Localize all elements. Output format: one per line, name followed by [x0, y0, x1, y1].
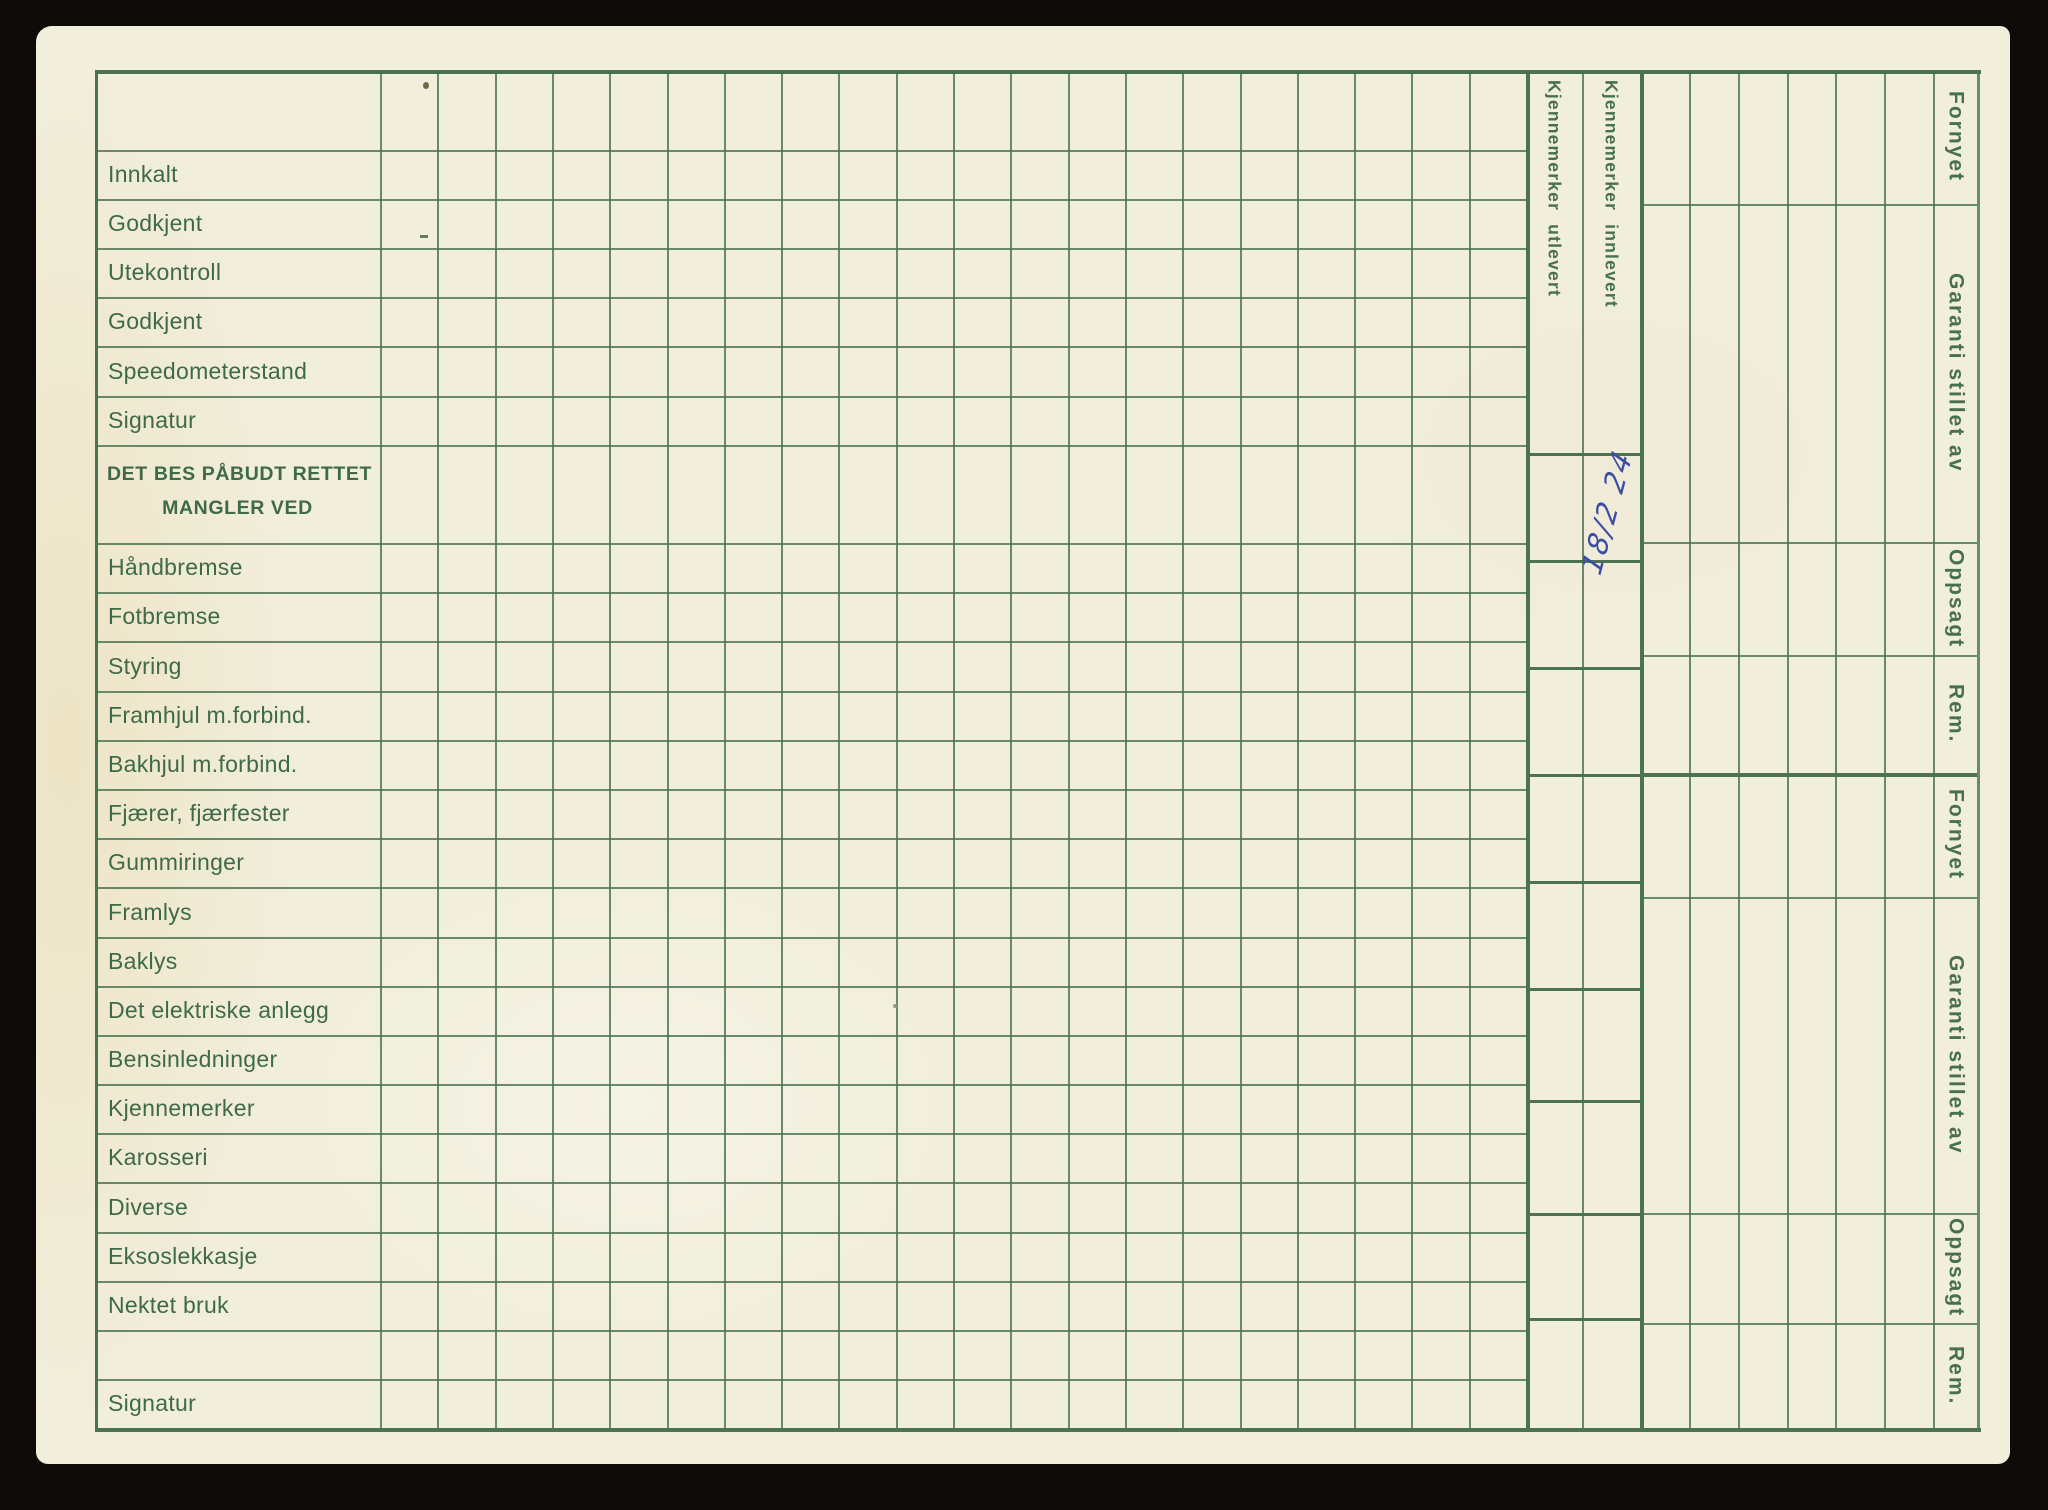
row-label: Gummiringer: [95, 838, 380, 887]
grid-line: [1977, 70, 1980, 1428]
right-label: Garanti stillet av: [1934, 204, 1977, 542]
row-label: Nektet bruk: [95, 1281, 380, 1330]
row-label: Godkjent: [95, 199, 380, 248]
grid-line: [1526, 667, 1640, 670]
row-label: Speedometerstand: [95, 346, 380, 396]
grid-line: [1787, 70, 1789, 1428]
plates-issued-label: Kjennemerker utlevert: [1544, 80, 1565, 453]
defects-header-line1: DET BES PÅBUDT RETTET: [95, 457, 380, 491]
grid-line: [1526, 1100, 1640, 1103]
right-label: Fornyet: [1934, 773, 1977, 897]
right-label: Oppsagt: [1934, 1213, 1977, 1323]
defects-header-line2: MANGLER VED: [95, 491, 380, 525]
row-label: Framlys: [95, 887, 380, 937]
grid-line: [1354, 70, 1356, 1428]
row-label: Diverse: [95, 1182, 380, 1232]
grid-line: [1010, 70, 1012, 1428]
scan-speck: [423, 82, 429, 89]
grid-line: [95, 70, 1981, 74]
row-label: Eksoslekkasje: [95, 1232, 380, 1281]
defects-header: DET BES PÅBUDT RETTET MANGLER VED: [95, 445, 380, 543]
grid-line: [1640, 70, 1644, 1428]
grid-line: [1526, 1318, 1640, 1321]
grid-line: [1640, 897, 1977, 899]
grid-line: [1640, 542, 1977, 544]
grid-line: [1526, 1213, 1640, 1216]
column-header-plates-returned: Kjennemerker innlevert: [1582, 70, 1640, 453]
grid-line: [1640, 204, 1977, 206]
right-label-text: Rem.: [1944, 1346, 1968, 1405]
grid-line: [838, 70, 840, 1428]
grid-line: [1125, 70, 1127, 1428]
right-label-text: Oppsagt: [1944, 549, 1968, 648]
scan-speck: [420, 235, 428, 238]
scanned-inspection-card: InnkaltGodkjentUtekontrollGodkjentSpeedo…: [0, 0, 2048, 1510]
column-header-plates-issued: Kjennemerker utlevert: [1526, 70, 1582, 453]
row-label: Signatur: [95, 1379, 380, 1428]
scan-speck: [893, 1004, 897, 1008]
row-label: Fotbremse: [95, 592, 380, 641]
row-label: Signatur: [95, 396, 380, 445]
right-label: Garanti stillet av: [1934, 897, 1977, 1213]
row-label: Fjærer, fjærfester: [95, 789, 380, 838]
row-label: Utekontroll: [95, 248, 380, 297]
row-label: Kjennemerker: [95, 1084, 380, 1133]
grid-line: [781, 70, 783, 1428]
grid-line: [1182, 70, 1184, 1428]
row-label: Godkjent: [95, 297, 380, 346]
right-label: Rem.: [1934, 1323, 1977, 1428]
right-label-text: Fornyet: [1944, 91, 1968, 182]
grid-line: [437, 70, 439, 1428]
grid-line: [1640, 1213, 1977, 1215]
grid-line: [1884, 70, 1886, 1428]
row-label: Bensinledninger: [95, 1035, 380, 1084]
grid-line: [1411, 70, 1413, 1428]
right-label: Fornyet: [1934, 70, 1977, 204]
grid-line: [1640, 773, 1977, 777]
row-label: Håndbremse: [95, 543, 380, 592]
grid-line: [95, 1330, 1526, 1332]
grid-line: [1240, 70, 1242, 1428]
grid-line: [1738, 70, 1740, 1428]
row-label: Baklys: [95, 937, 380, 986]
row-label: Bakhjul m.forbind.: [95, 740, 380, 789]
grid-line: [495, 70, 497, 1428]
grid-line: [1689, 70, 1691, 1428]
row-label: Innkalt: [95, 150, 380, 199]
grid-line: [1526, 774, 1640, 777]
right-label: Rem.: [1934, 655, 1977, 773]
right-label-text: Rem.: [1944, 684, 1968, 743]
right-label-text: Garanti stillet av: [1944, 273, 1968, 472]
grid-line: [953, 70, 955, 1428]
right-label-text: Fornyet: [1944, 789, 1968, 880]
right-label-text: Oppsagt: [1944, 1218, 1968, 1317]
grid-line: [1526, 881, 1640, 884]
grid-line: [609, 70, 611, 1428]
row-label: Karosseri: [95, 1133, 380, 1182]
row-label: Styring: [95, 641, 380, 691]
grid-line: [1526, 988, 1640, 991]
grid-line: [1835, 70, 1837, 1428]
grid-line: [1469, 70, 1471, 1428]
grid-line: [1068, 70, 1070, 1428]
right-label-text: Garanti stillet av: [1944, 955, 1968, 1154]
grid-line: [95, 1428, 1981, 1432]
row-label: Det elektriske anlegg: [95, 986, 380, 1035]
grid-line: [552, 70, 554, 1428]
row-label: Framhjul m.forbind.: [95, 691, 380, 740]
plates-returned-label: Kjennemerker innlevert: [1601, 80, 1622, 453]
grid-line: [1640, 1323, 1977, 1325]
right-label: Oppsagt: [1934, 542, 1977, 655]
grid-line: [380, 70, 382, 1428]
grid-line: [1640, 655, 1977, 657]
grid-line: [1297, 70, 1299, 1428]
grid-line: [896, 70, 898, 1428]
grid-line: [724, 70, 726, 1428]
grid-line: [667, 70, 669, 1428]
